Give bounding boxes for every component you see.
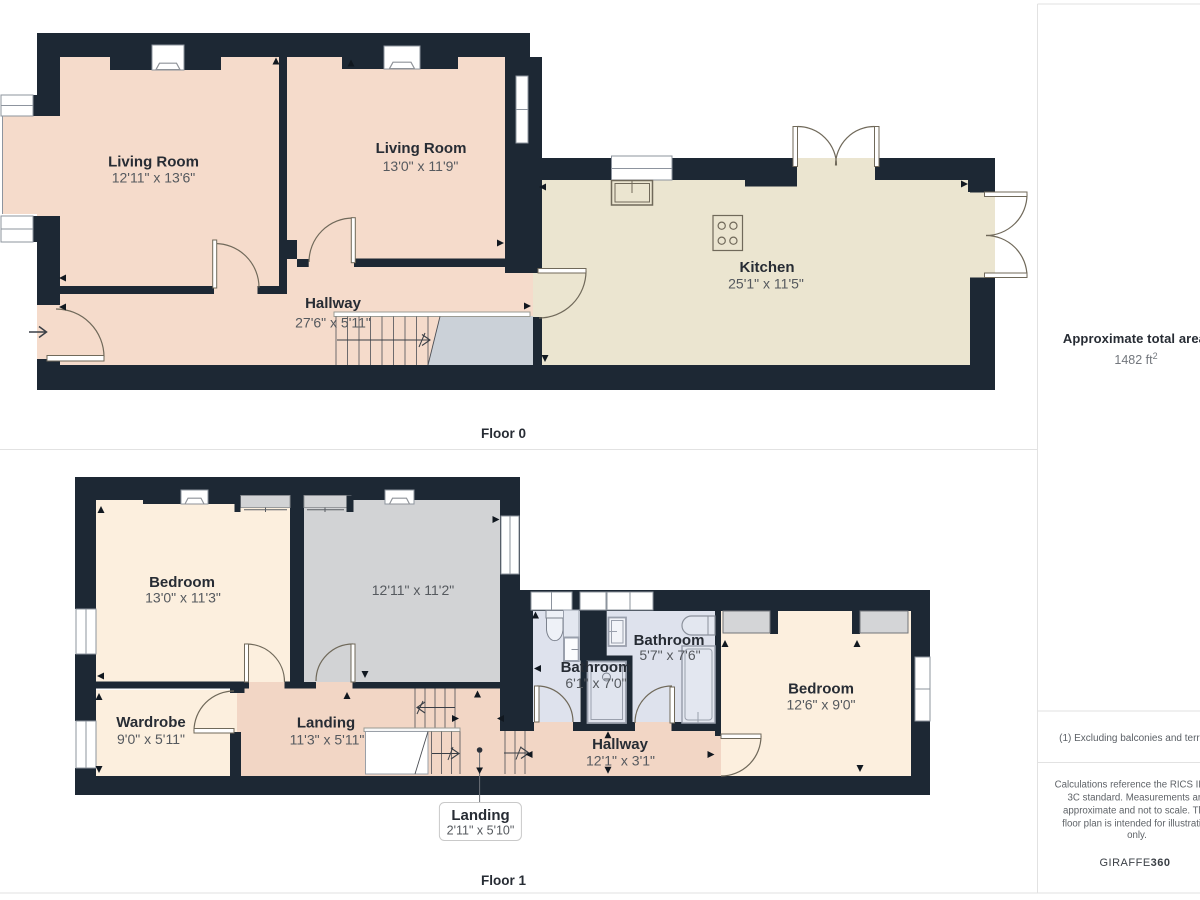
svg-text:27'6" x 5'11": 27'6" x 5'11"	[295, 315, 371, 331]
svg-text:Floor 1: Floor 1	[481, 873, 526, 888]
svg-text:3C standard. Measurements are: 3C standard. Measurements are	[1068, 793, 1200, 804]
svg-text:Kitchen: Kitchen	[739, 259, 794, 276]
svg-text:25'1" x 11'5": 25'1" x 11'5"	[728, 276, 804, 292]
svg-text:Hallway: Hallway	[305, 295, 362, 312]
svg-text:Approximate total area1: Approximate total area1	[1063, 330, 1200, 346]
svg-text:only.: only.	[1127, 830, 1147, 841]
svg-text:Calculations reference the RIC: Calculations reference the RICS IPMS	[1055, 780, 1200, 791]
svg-text:Landing: Landing	[451, 807, 509, 824]
svg-text:12'1" x 3'1": 12'1" x 3'1"	[586, 753, 655, 769]
svg-text:1482 ft2: 1482 ft2	[1114, 351, 1157, 367]
svg-text:Bedroom: Bedroom	[149, 574, 215, 591]
svg-text:Living Room: Living Room	[376, 140, 467, 157]
svg-text:12'6" x 9'0": 12'6" x 9'0"	[787, 697, 856, 713]
svg-text:Floor 0: Floor 0	[481, 426, 526, 441]
svg-text:12'11" x 11'2": 12'11" x 11'2"	[372, 582, 455, 598]
svg-text:(1) Excluding balconies and te: (1) Excluding balconies and terraces	[1059, 733, 1200, 744]
svg-text:GIRAFFE360: GIRAFFE360	[1099, 857, 1170, 869]
svg-text:13'0" x 11'3": 13'0" x 11'3"	[145, 590, 221, 606]
svg-text:11'3" x 5'11": 11'3" x 5'11"	[290, 732, 365, 748]
svg-text:Bathroom: Bathroom	[561, 659, 632, 676]
svg-text:Landing: Landing	[297, 715, 355, 732]
svg-text:5'7" x 7'6": 5'7" x 7'6"	[639, 647, 700, 663]
svg-text:9'0" x 5'11": 9'0" x 5'11"	[117, 731, 185, 747]
svg-text:2'11" x 5'10": 2'11" x 5'10"	[447, 824, 515, 838]
svg-text:12'11" x 13'6": 12'11" x 13'6"	[112, 170, 196, 186]
svg-text:Wardrobe: Wardrobe	[116, 714, 185, 731]
svg-text:Living Room: Living Room	[108, 154, 199, 171]
svg-text:floor plan is intended for ill: floor plan is intended for illustration	[1062, 819, 1200, 830]
svg-text:approximate and not to scale.: approximate and not to scale. This	[1063, 806, 1200, 817]
svg-text:Bedroom: Bedroom	[788, 681, 854, 698]
svg-text:6'1" x 7'0": 6'1" x 7'0"	[565, 675, 626, 691]
svg-text:Hallway: Hallway	[592, 736, 649, 753]
svg-text:13'0" x 11'9": 13'0" x 11'9"	[383, 158, 459, 174]
